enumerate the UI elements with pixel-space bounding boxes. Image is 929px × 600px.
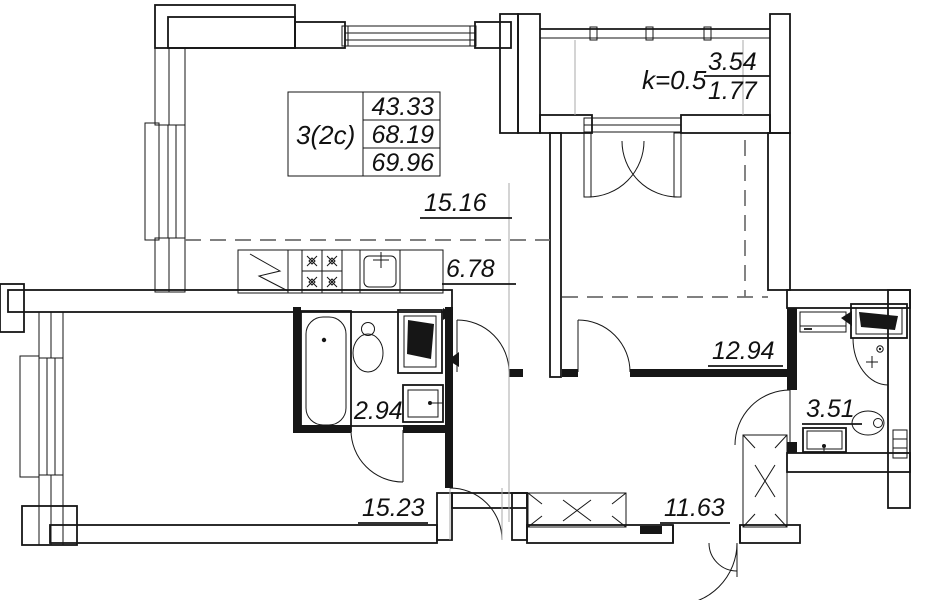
kitchen-sink-icon: [364, 252, 396, 287]
floor-plan-svg: 3(2c) 43.33 68.19 69.96 k=0.5 3.54 1.77 …: [0, 0, 929, 600]
bathroom-small-door: [351, 430, 403, 482]
shelf-icon: [800, 312, 846, 332]
window-room-left: [20, 356, 63, 477]
fridge-icon: [250, 254, 288, 291]
balcony-coefficient: k=0.5: [642, 65, 707, 95]
apartment-card: 3(2c) 43.33 68.19 69.96: [288, 92, 440, 177]
stove-icon: [302, 250, 342, 293]
entrance-door: [673, 525, 740, 600]
bathtub-icon: [301, 311, 351, 431]
bathroom-small-sink-icon: [403, 385, 443, 422]
balcony-glazing: [540, 27, 770, 40]
apartment-area-3: 69.96: [371, 149, 434, 177]
washing-machine-icon: [841, 304, 907, 338]
walls-partitions: [293, 133, 797, 534]
label-bathroom-combined: 2.94: [353, 397, 403, 425]
shaft-washing-machine: [398, 310, 442, 373]
wardrobes: [528, 435, 787, 527]
label-kitchen-zone: 6.78: [446, 255, 495, 283]
room-lower-door: [450, 488, 502, 540]
wardrobe-hall-side: [743, 435, 787, 527]
toilet-icon: [353, 323, 383, 373]
apartment-area-1: 43.33: [371, 93, 434, 121]
balcony-area-full: 3.54: [708, 48, 757, 76]
balcony-double-door: [584, 118, 681, 197]
wardrobe-hall-bottom: [528, 493, 626, 527]
label-hallway: 11.63: [664, 494, 725, 522]
corner-shower-icon: [853, 338, 888, 385]
label-bedroom: 12.94: [712, 337, 775, 365]
label-living-zone: 15.16: [424, 189, 487, 217]
toilet2-icon: [852, 411, 884, 435]
bedroom-door: [578, 320, 630, 372]
apartment-area-2: 68.19: [371, 121, 434, 149]
balcony-annotation: k=0.5 3.54 1.77: [642, 48, 770, 105]
bathroom-fixtures: [800, 304, 907, 458]
balcony-area-reduced: 1.77: [708, 77, 758, 105]
bathroom-sink-icon: [803, 428, 846, 452]
window-living-left: [145, 123, 185, 240]
apartment-type-label: 3(2c): [296, 120, 355, 150]
label-room-lower: 15.23: [362, 494, 425, 522]
kitchen-counter: [238, 250, 443, 293]
label-bathroom: 3.51: [806, 395, 855, 423]
floor-plan-canvas: 3(2c) 43.33 68.19 69.96 k=0.5 3.54 1.77 …: [0, 0, 929, 600]
window-living-top: [342, 26, 476, 46]
